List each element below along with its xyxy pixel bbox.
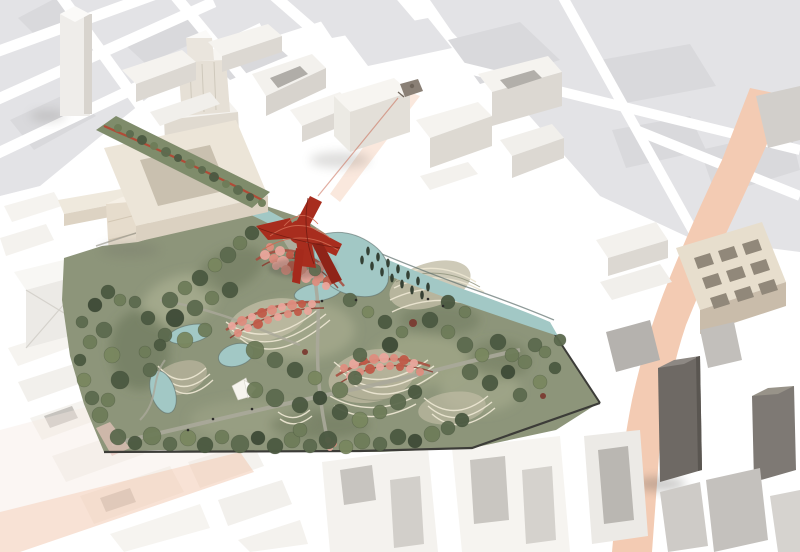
dark-tower-1 — [658, 356, 702, 482]
dark-tower-2 — [752, 386, 796, 482]
white-tower — [60, 6, 92, 116]
rendering-canvas — [0, 0, 800, 552]
